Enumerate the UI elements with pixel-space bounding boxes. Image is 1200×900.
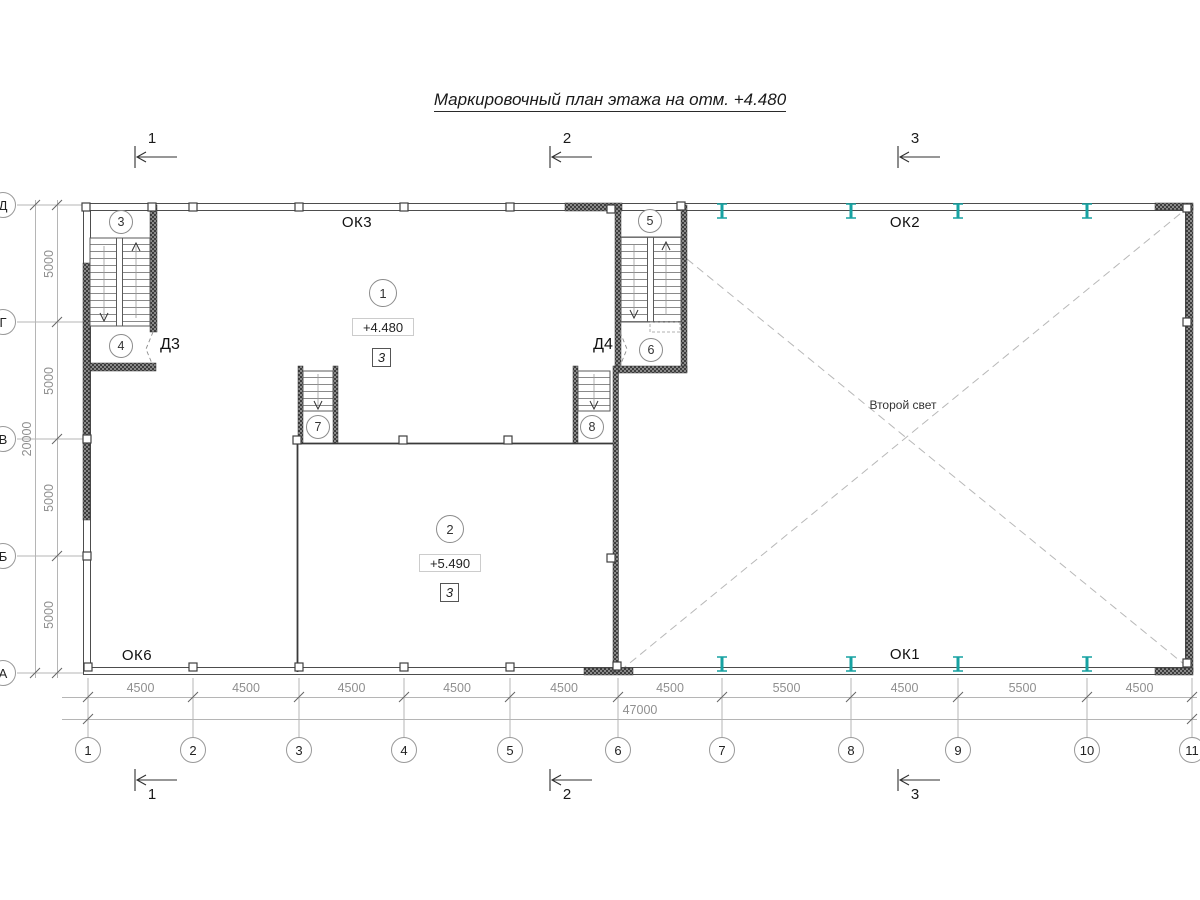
section-label: 1 bbox=[141, 786, 163, 803]
floor-plan-drawing bbox=[0, 0, 1200, 900]
column-bubble: 2 bbox=[180, 737, 206, 763]
window-mark-label: ОК3 bbox=[327, 214, 387, 231]
dimension-total-label: 20000 bbox=[19, 409, 35, 469]
column-bubble: 11 bbox=[1179, 737, 1200, 763]
dimension-label: 4500 bbox=[532, 681, 596, 695]
dimension-label: 5000 bbox=[41, 351, 57, 411]
stair-marker: 8 bbox=[580, 415, 604, 439]
column-bubble: 3 bbox=[286, 737, 312, 763]
column-bubble: 4 bbox=[391, 737, 417, 763]
room-number-2: 2 bbox=[436, 515, 464, 543]
dimension-total-label: 47000 bbox=[608, 703, 672, 717]
dimension-label: 4500 bbox=[873, 681, 937, 695]
column-bubble: 5 bbox=[497, 737, 523, 763]
dimension-label: 5000 bbox=[41, 234, 57, 294]
floor-plan-canvas: Маркировочный план этажа на отм. +4.480 … bbox=[0, 0, 1200, 900]
room-2-elevation: +5.490 bbox=[419, 554, 481, 572]
stair-marker: 5 bbox=[638, 209, 662, 233]
dimension-label: 4500 bbox=[320, 681, 384, 695]
column-bubble: 8 bbox=[838, 737, 864, 763]
door-mark-label: Д4 bbox=[578, 336, 628, 354]
window-mark-label: ОК1 bbox=[875, 646, 935, 663]
dimension-label: 5000 bbox=[41, 585, 57, 645]
room-1-elevation: +4.480 bbox=[352, 318, 414, 336]
dimension-label: 4500 bbox=[214, 681, 278, 695]
steel-column-icons bbox=[717, 204, 1092, 671]
column-bubble: 6 bbox=[605, 737, 631, 763]
dimension-label: 5500 bbox=[991, 681, 1055, 695]
column-bubble: 9 bbox=[945, 737, 971, 763]
dimension-label: 5000 bbox=[41, 468, 57, 528]
section-label: 3 bbox=[904, 130, 926, 147]
room-number-1: 1 bbox=[369, 279, 397, 307]
second-light-label: Второй свет bbox=[853, 398, 953, 412]
second-light-diagonals bbox=[620, 209, 1186, 671]
dimension-label: 4500 bbox=[109, 681, 173, 695]
grid-lines bbox=[17, 200, 1197, 737]
column-bubble: 10 bbox=[1074, 737, 1100, 763]
room-2-type-mark: 3 bbox=[440, 583, 459, 602]
section-label: 2 bbox=[556, 786, 578, 803]
staircase-8 bbox=[578, 371, 610, 411]
room-1-type-mark: 3 bbox=[372, 348, 391, 367]
stair-marker: 6 bbox=[639, 338, 663, 362]
section-label: 3 bbox=[904, 786, 926, 803]
window-mark-label: ОК6 bbox=[107, 647, 167, 664]
dimension-label: 4500 bbox=[1108, 681, 1172, 695]
stair-marker: 7 bbox=[306, 415, 330, 439]
window-mark-label: ОК2 bbox=[875, 214, 935, 231]
door-mark-label: Д3 bbox=[145, 336, 195, 354]
dimension-label: 5500 bbox=[755, 681, 819, 695]
drawing-title-text: Маркировочный план этажа на отм. +4.480 bbox=[434, 90, 786, 112]
staircase-7 bbox=[303, 371, 333, 411]
stair-marker: 3 bbox=[109, 210, 133, 234]
column-bubble: 7 bbox=[709, 737, 735, 763]
column-bubble: 1 bbox=[75, 737, 101, 763]
section-label: 2 bbox=[556, 130, 578, 147]
section-label: 1 bbox=[141, 130, 163, 147]
dimension-label: 4500 bbox=[425, 681, 489, 695]
drawing-title: Маркировочный план этажа на отм. +4.480 bbox=[0, 90, 1200, 110]
dimension-label: 4500 bbox=[638, 681, 702, 695]
stair-marker: 4 bbox=[109, 334, 133, 358]
